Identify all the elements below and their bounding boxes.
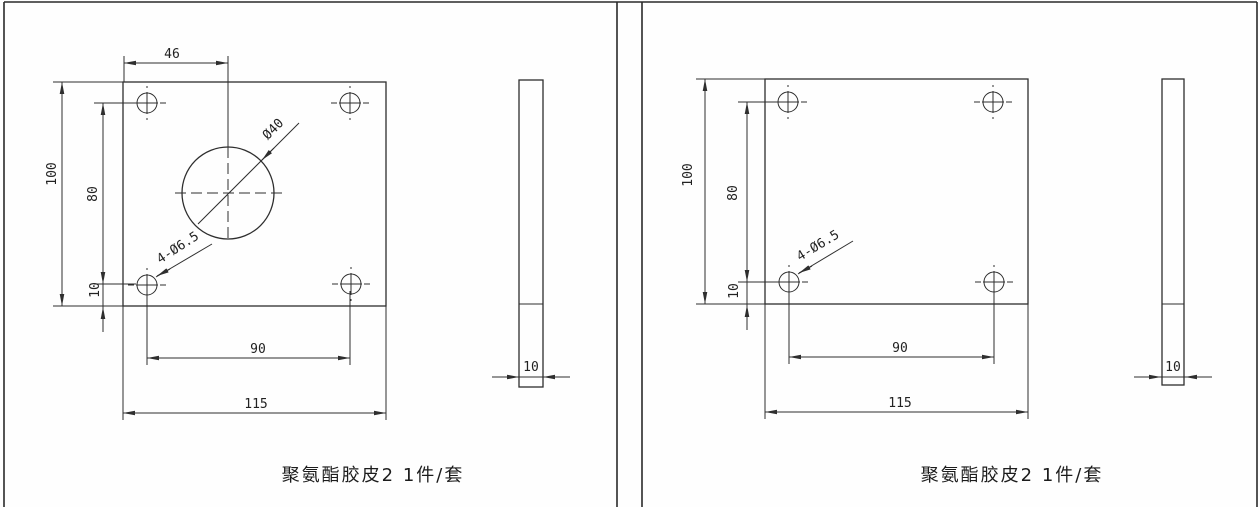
dim-label-100: 100 — [681, 163, 696, 186]
leader-arrow — [262, 148, 274, 160]
leader-line — [198, 123, 299, 224]
dim-100: 100 — [681, 79, 705, 304]
corner-holes-label: 4-Ø6.5 — [794, 227, 842, 264]
dim-10-offset: 10 — [88, 282, 103, 332]
side-view-outline — [519, 80, 543, 387]
scanned-engineering-drawing: 46 100 80 10 Ø40 4-Ø — [0, 0, 1260, 507]
hole-symbol-top-right — [331, 86, 369, 120]
corner-holes-label: 4-Ø6.5 — [154, 229, 202, 267]
dim-label-thickness: 10 — [1165, 360, 1181, 375]
dim-label-115: 115 — [244, 397, 267, 412]
dim-90: 90 — [789, 291, 994, 364]
dim-label-thickness: 10 — [523, 360, 539, 375]
dim-label-90: 90 — [892, 341, 908, 356]
dim-label-100: 100 — [45, 162, 60, 185]
dim-115: 115 — [765, 304, 1028, 419]
leader-arrow — [157, 269, 170, 276]
dim-label-10: 10 — [727, 283, 742, 299]
panel-borders — [4, 2, 1257, 507]
dim-80: 80 — [726, 102, 779, 282]
label-center-hole: Ø40 — [198, 116, 299, 224]
hole-symbol-bottom-right — [332, 267, 370, 301]
label-corner-holes: 4-Ø6.5 — [154, 229, 212, 277]
dim-label-80: 80 — [86, 186, 101, 202]
dim-label-10: 10 — [88, 282, 103, 298]
side-view-outline — [1162, 79, 1184, 385]
drawing-canvas: 46 100 80 10 Ø40 4-Ø — [0, 0, 1260, 507]
dim-115: 115 — [123, 306, 386, 420]
drawing-right: 100 80 10 4-Ø6.5 90 — [681, 79, 1212, 486]
dim-label-115: 115 — [888, 396, 911, 411]
dim-10-offset: 10 — [727, 282, 747, 330]
dim-label-46: 46 — [164, 47, 180, 62]
caption-right: 聚氨酯胶皮2 1件/套 — [921, 465, 1104, 486]
hole-symbol-top-right — [974, 85, 1012, 119]
dim-90: 90 — [147, 291, 350, 365]
side-view-right: 10 — [1134, 79, 1212, 385]
drawing-left: 46 100 80 10 Ø40 4-Ø — [45, 47, 570, 486]
leader-arrow — [799, 266, 812, 273]
plate-outline-left — [123, 82, 386, 306]
dim-label-90: 90 — [250, 342, 266, 357]
side-view-left: 10 — [492, 80, 570, 387]
dim-label-80: 80 — [726, 185, 741, 201]
label-corner-holes: 4-Ø6.5 — [794, 227, 853, 274]
dim-100: 100 — [45, 82, 62, 306]
dim-80: 80 — [86, 103, 136, 284]
dim-46: 46 — [124, 47, 228, 82]
caption-left: 聚氨酯胶皮2 1件/套 — [282, 465, 465, 486]
